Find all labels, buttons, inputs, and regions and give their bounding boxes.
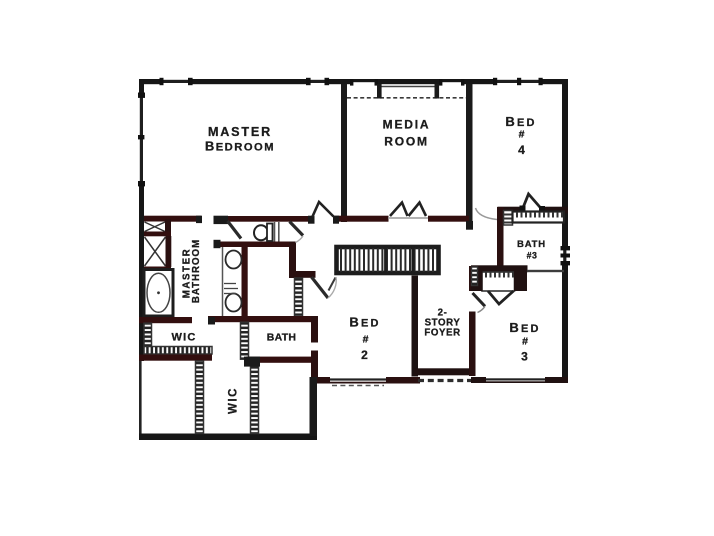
- svg-text:#3: #3: [527, 251, 538, 261]
- svg-text:BED: BED: [349, 315, 380, 330]
- svg-text:WIC: WIC: [228, 387, 240, 414]
- svg-text:FOYER: FOYER: [424, 328, 460, 339]
- svg-text:MASTER: MASTER: [208, 125, 272, 139]
- svg-text:BATH: BATH: [267, 332, 297, 344]
- svg-text:#: #: [519, 129, 525, 141]
- svg-text:BATHROOM: BATHROOM: [191, 239, 202, 303]
- svg-text:BED: BED: [505, 114, 536, 129]
- svg-text:3: 3: [521, 350, 528, 364]
- svg-text:#: #: [363, 334, 369, 346]
- svg-text:BEDROOM: BEDROOM: [205, 139, 275, 154]
- svg-text:MEDIA: MEDIA: [383, 118, 431, 132]
- svg-text:WIC: WIC: [172, 332, 197, 344]
- svg-text:ROOM: ROOM: [384, 135, 429, 149]
- svg-text:BED: BED: [509, 320, 540, 335]
- svg-text:2: 2: [361, 348, 368, 362]
- svg-text:BATH: BATH: [517, 239, 546, 250]
- svg-text:4: 4: [518, 143, 525, 157]
- svg-text:#: #: [522, 336, 528, 348]
